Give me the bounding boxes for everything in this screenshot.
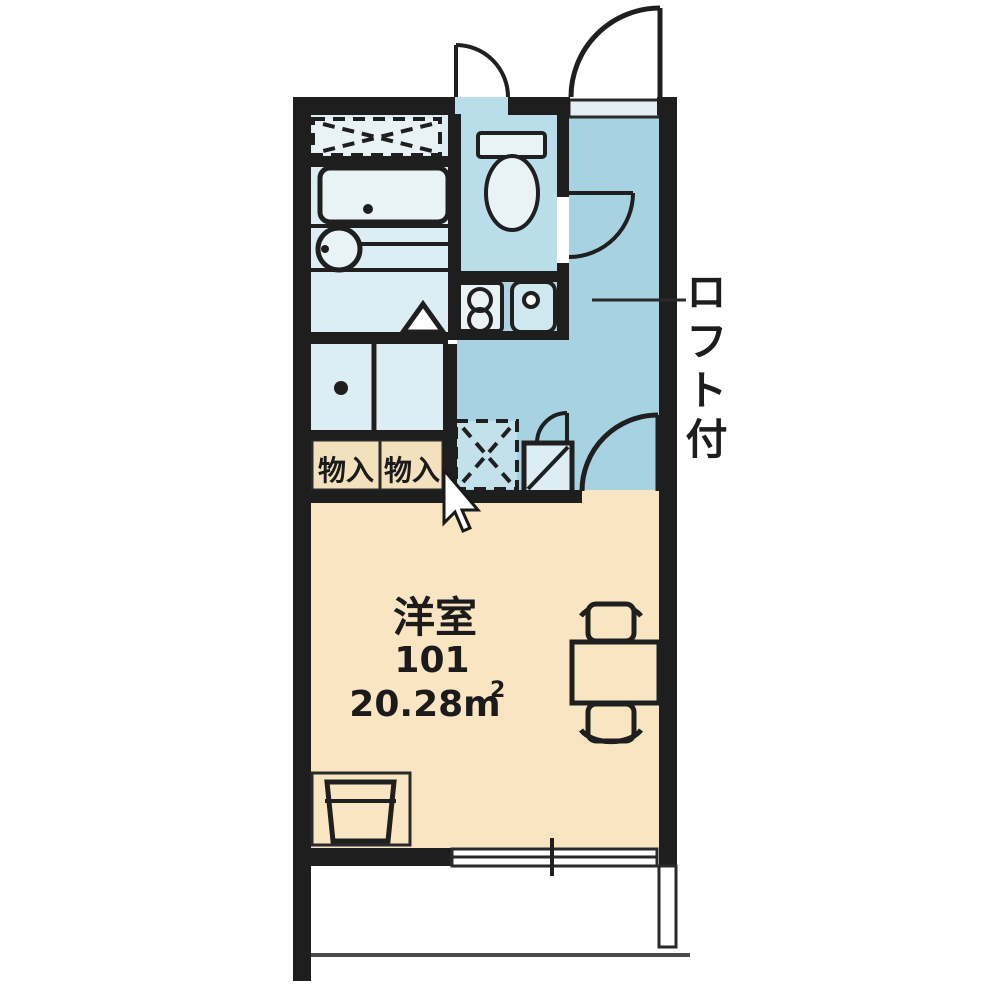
vestibule-floor [377, 344, 443, 430]
storage-label-left: 物入 [318, 454, 374, 487]
hallway-floor [569, 114, 659, 490]
wash-basin-faucet-dot [321, 245, 329, 253]
toilet-tank [478, 133, 545, 157]
toilet-bowl [486, 156, 538, 230]
room-door-gap [582, 490, 659, 503]
toilet-outer-door-swing [456, 45, 508, 97]
room-number-label: 101 [394, 640, 469, 681]
counter-bottom-bar [448, 331, 569, 340]
bath-toilet-wall [448, 114, 461, 340]
storage-top-bar [311, 430, 443, 440]
laundry-divider-bar [311, 156, 448, 167]
bathtub [320, 168, 448, 222]
floorplan-page: 物入 物入 洋室 101 20.28m 2 ロフト付 [0, 0, 999, 1000]
bath-bottom-wall [311, 332, 448, 344]
top-wall-mid [508, 97, 570, 115]
chair-bottom [588, 704, 634, 741]
storage-label-right: 物入 [384, 454, 440, 487]
floorplan-drawing: 物入 物入 洋室 101 20.28m 2 [0, 0, 999, 1000]
counter-top-bar [448, 271, 569, 282]
room-bottom-wall [293, 848, 452, 866]
washer-faucet-dot [334, 381, 348, 395]
top-wall-left [293, 97, 455, 115]
room-name-label: 洋室 [393, 593, 477, 642]
table [572, 642, 659, 703]
loft-note-label: ロフト付 [682, 270, 724, 466]
entrance-step [569, 100, 659, 117]
chair-top [588, 604, 634, 641]
corner-unit-basin [327, 782, 394, 841]
bathtub-drain-dot [363, 204, 373, 214]
entrance-door-swing [571, 8, 660, 97]
balcony-divider [659, 866, 676, 947]
kitchen-faucet [524, 293, 538, 307]
room-area-label: 20.28m [349, 684, 500, 725]
room-area-superscript: 2 [490, 678, 505, 703]
right-wall [659, 97, 677, 866]
hall-wall-upper [557, 114, 569, 197]
